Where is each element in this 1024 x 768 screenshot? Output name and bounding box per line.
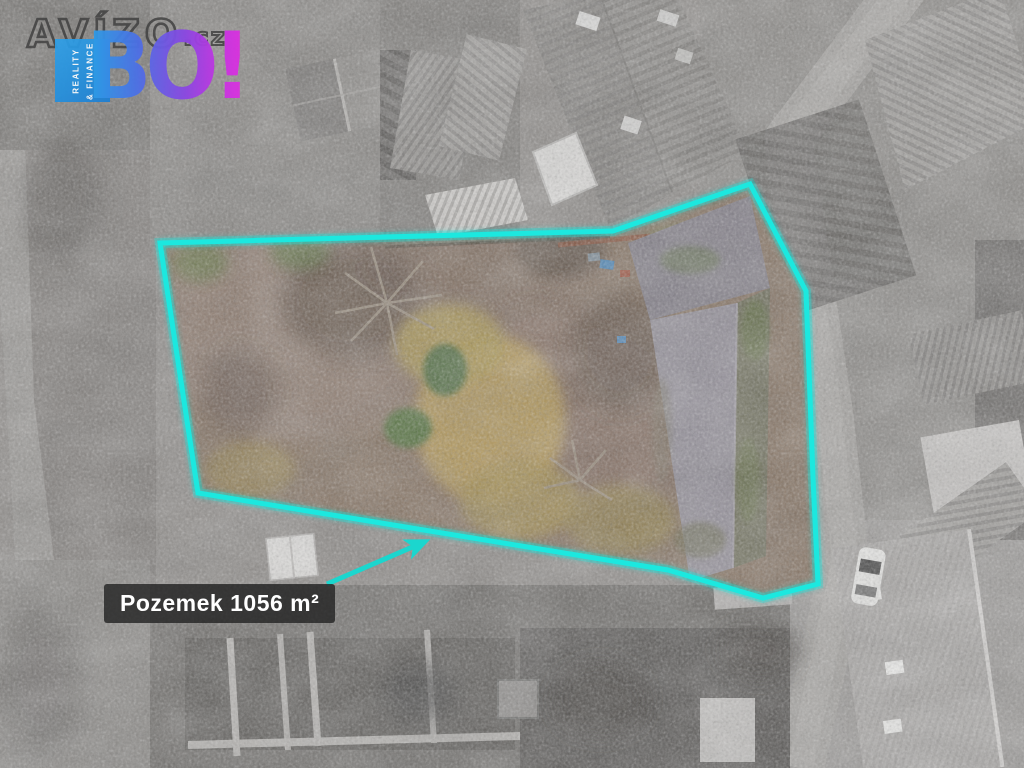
parcel-area-text: Pozemek 1056 m²: [120, 590, 319, 617]
aerial-photo-stage: Pozemek 1056 m² AVÍZO.cz REALITY & FINAN…: [0, 0, 1024, 768]
brand-bo-text: BO!: [86, 20, 246, 113]
watermark-logo: AVÍZO.cz REALITY & FINANCE BO!: [0, 0, 260, 140]
parcel-area-label: Pozemek 1056 m²: [104, 584, 335, 623]
badge-line-1: REALITY: [69, 42, 83, 100]
